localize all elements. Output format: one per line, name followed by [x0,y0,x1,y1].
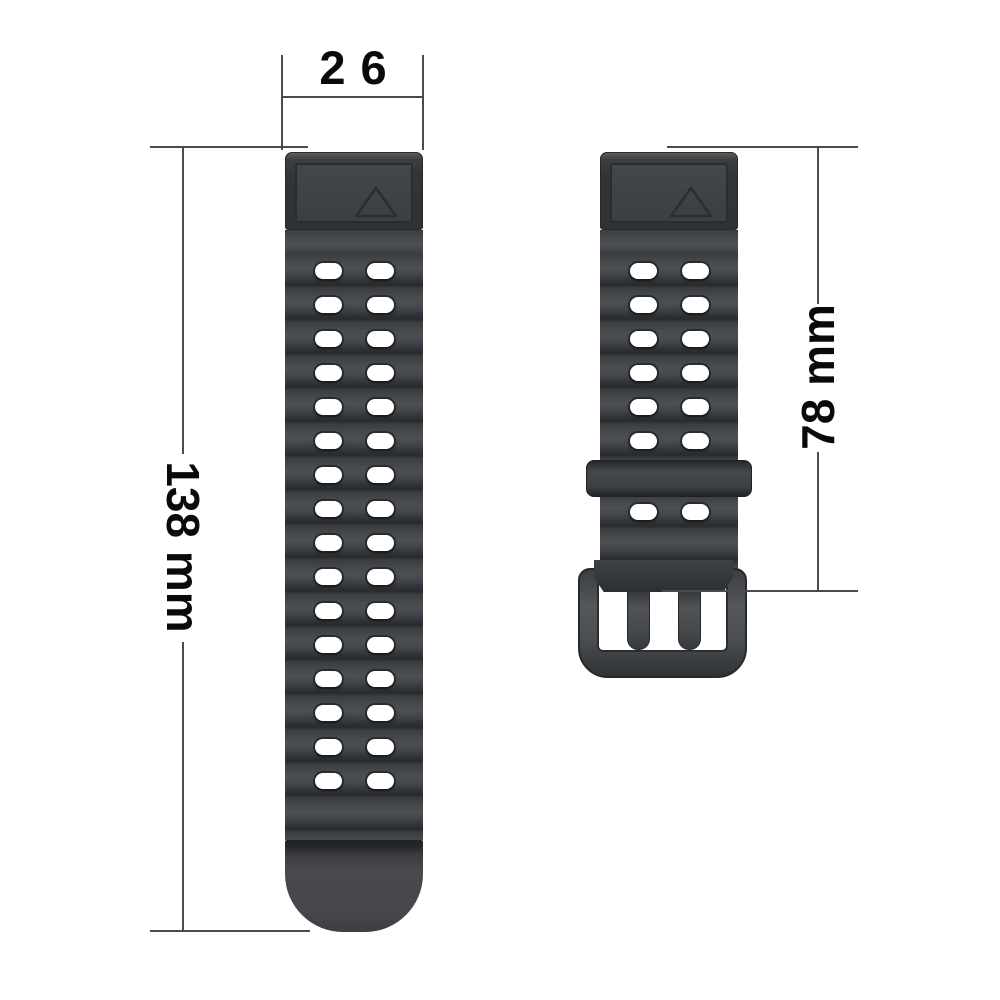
watch-band-dimension-diagram: 26 138 mm 78 mm [0,0,1000,1000]
strap-hole-row [285,254,423,288]
strap-hole [682,331,709,347]
strap-hole-row [600,322,738,356]
strap-ridge [600,230,738,254]
strap-hole-row [285,322,423,356]
short-strap-band [600,230,738,570]
strap-hole [315,331,342,347]
strap-ridge [285,798,423,840]
strap-hole [367,637,394,653]
strap-hole [682,433,709,449]
long-dim-extension-top [150,146,308,148]
strap-hole [367,263,394,279]
strap-hole [367,297,394,313]
strap-hole-row [600,288,738,322]
strap-hole [630,365,657,381]
strap-hole [367,433,394,449]
short-dim-extension-top [667,146,858,148]
short-strap [600,152,738,678]
strap-hole [682,504,709,520]
strap-hole [315,637,342,653]
strap-hole [315,263,342,279]
strap-hole-row [285,764,423,798]
strap-hole-row [285,492,423,526]
strap-hole-row [285,390,423,424]
strap-hole [630,504,657,520]
width-dim-label: 26 [283,44,423,91]
keeper-loop [586,460,752,497]
strap-hole-row [285,424,423,458]
strap-hole [682,297,709,313]
short-strap-lug-connector [600,152,738,230]
long-strap-tail-end [285,840,423,932]
long-strap-band [285,230,423,840]
strap-hole-row [285,458,423,492]
short-strap-holes-upper [600,254,738,458]
strap-hole [315,501,342,517]
strap-hole-row [600,254,738,288]
strap-hole [367,501,394,517]
short-dim-line-lower [817,452,819,592]
long-dim-label: 138 mm [160,461,206,632]
strap-hole-row [600,424,738,458]
strap-hole [630,263,657,279]
width-dim-line [281,96,424,98]
short-strap-holes-lower [600,495,738,529]
strap-ridge [285,230,423,254]
strap-hole [315,365,342,381]
strap-hole-row [285,526,423,560]
short-dim-line-upper [817,146,819,304]
strap-hole-row [285,356,423,390]
strap-hole-row [600,390,738,424]
strap-hole [367,535,394,551]
strap-hole [315,297,342,313]
long-strap-lug-connector [285,152,423,230]
strap-hole-row [285,662,423,696]
strap-hole [630,433,657,449]
strap-hole-row [285,560,423,594]
strap-hole [367,671,394,687]
triangle-up-icon [353,185,399,219]
strap-hole [682,263,709,279]
strap-hole [367,705,394,721]
connector-panel [610,163,728,223]
buckle-prong [678,584,701,650]
strap-hole-row [600,495,738,529]
strap-hole [367,331,394,347]
short-dim-extension-bottom [662,590,858,592]
long-strap [285,152,423,932]
long-dim-line-lower [182,642,184,932]
strap-hole [367,399,394,415]
long-dim-line-upper [182,146,184,454]
strap-hole-row [600,356,738,390]
strap-hole [367,773,394,789]
strap-hole [682,365,709,381]
strap-hole-row [285,288,423,322]
strap-hole [630,297,657,313]
strap-hole [315,467,342,483]
strap-hole [315,603,342,619]
strap-hole [367,603,394,619]
strap-hole-row [285,696,423,730]
long-dim-extension-bottom [150,930,310,932]
strap-hole [682,399,709,415]
strap-hole [315,535,342,551]
strap-hole [315,739,342,755]
long-strap-holes [285,254,423,798]
strap-hole [367,365,394,381]
strap-hole [315,705,342,721]
triangle-up-icon [668,185,714,219]
strap-hole [630,331,657,347]
strap-hole-row [285,730,423,764]
buckle-opening [599,582,726,650]
strap-hole [315,399,342,415]
strap-hole [315,569,342,585]
strap-hole [367,467,394,483]
strap-hole-row [285,594,423,628]
strap-hole [367,569,394,585]
connector-panel [295,163,413,223]
strap-hole [367,739,394,755]
short-strap-band-end [594,560,733,592]
short-dim-label: 78 mm [795,304,841,450]
strap-hole [315,433,342,449]
strap-hole [315,671,342,687]
strap-hole [315,773,342,789]
strap-hole [630,399,657,415]
buckle-prong [627,584,650,650]
strap-hole-row [285,628,423,662]
